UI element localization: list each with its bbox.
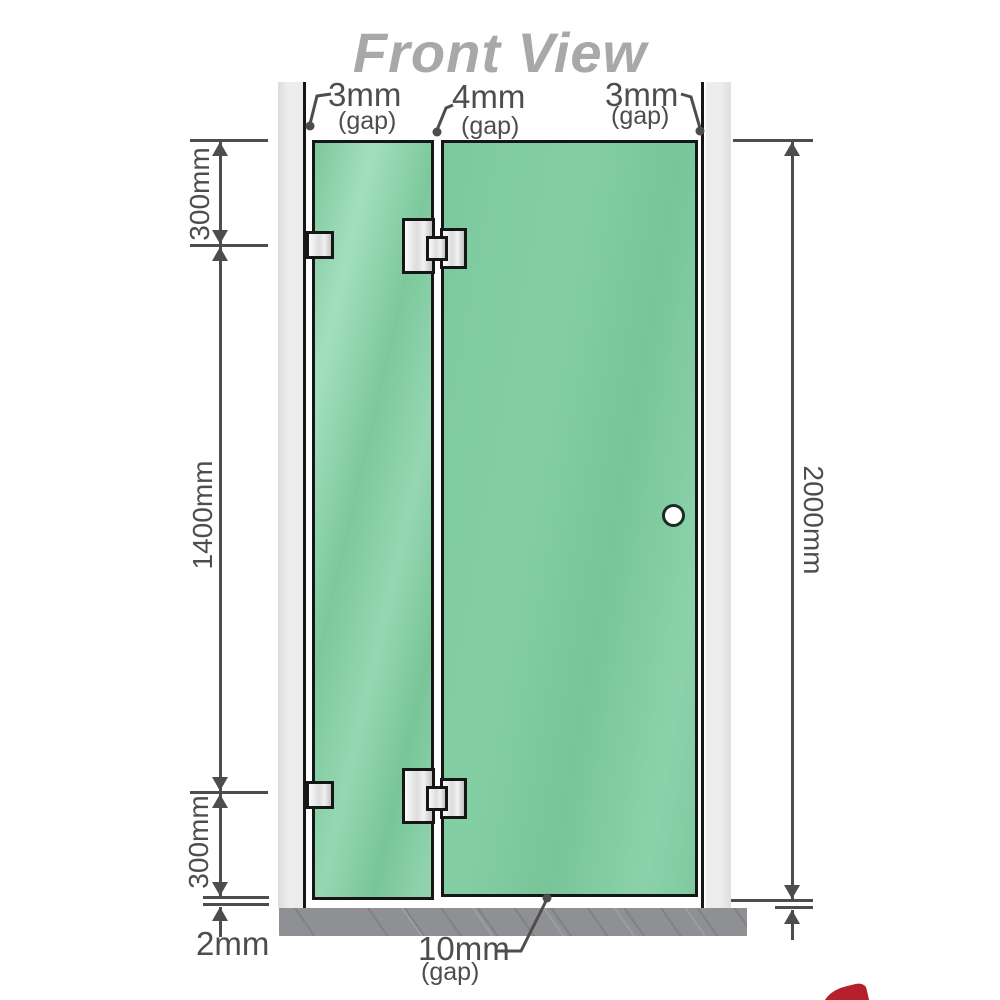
door-glass-panel — [441, 140, 698, 897]
gap-top-right-suffix: (gap) — [611, 102, 669, 131]
dim-left-middle-label: 1400mm — [187, 461, 219, 570]
arrow-icon — [784, 142, 800, 156]
gap-bottom-suffix: (gap) — [421, 958, 479, 987]
gap-top-left-suffix: (gap) — [338, 107, 396, 136]
right-dimension-line — [791, 142, 794, 900]
arrow-icon — [212, 907, 228, 921]
logo-swoosh-icon — [818, 982, 870, 1000]
leader-line — [437, 105, 453, 130]
dim-left-top-label: 300mm — [184, 147, 216, 240]
tick-glass-top — [190, 139, 268, 142]
hinge-top-knuckle — [426, 236, 448, 261]
dim-left-bottom-label: 300mm — [183, 795, 215, 888]
right-wall — [706, 82, 731, 908]
leader-dot-icon — [433, 128, 442, 137]
arrow-icon — [784, 910, 800, 924]
arrow-icon — [212, 247, 228, 261]
arrow-icon — [784, 885, 800, 899]
right-wall-gap-line — [701, 82, 704, 908]
wall-bracket-top — [306, 231, 334, 259]
tick-right-top — [733, 139, 813, 142]
tick-floor — [203, 903, 269, 906]
leader-dot-icon — [306, 122, 315, 131]
gap-top-middle-value: 4mm — [452, 78, 525, 116]
tick-glass-bottom — [203, 896, 269, 899]
tick-right-floor — [775, 906, 813, 909]
wall-bracket-bottom — [306, 781, 334, 809]
tick-hinge-top — [190, 244, 268, 247]
dim-right-total-label: 2000mm — [797, 466, 829, 575]
left-wall — [278, 82, 303, 908]
dim-2mm-label: 2mm — [196, 925, 269, 963]
hinge-bottom-knuckle — [426, 786, 448, 811]
floor-base-bar — [279, 908, 747, 936]
tick-hinge-bottom — [190, 791, 268, 794]
tick-right-bottom — [731, 899, 813, 902]
arrow-icon — [212, 777, 228, 791]
leader-line — [681, 94, 700, 128]
front-view-diagram: Front View 300mm 1400mm 300mm 2mm 2000mm… — [0, 0, 1000, 1000]
gap-top-middle-suffix: (gap) — [461, 112, 519, 141]
door-handle-knob — [662, 504, 685, 527]
